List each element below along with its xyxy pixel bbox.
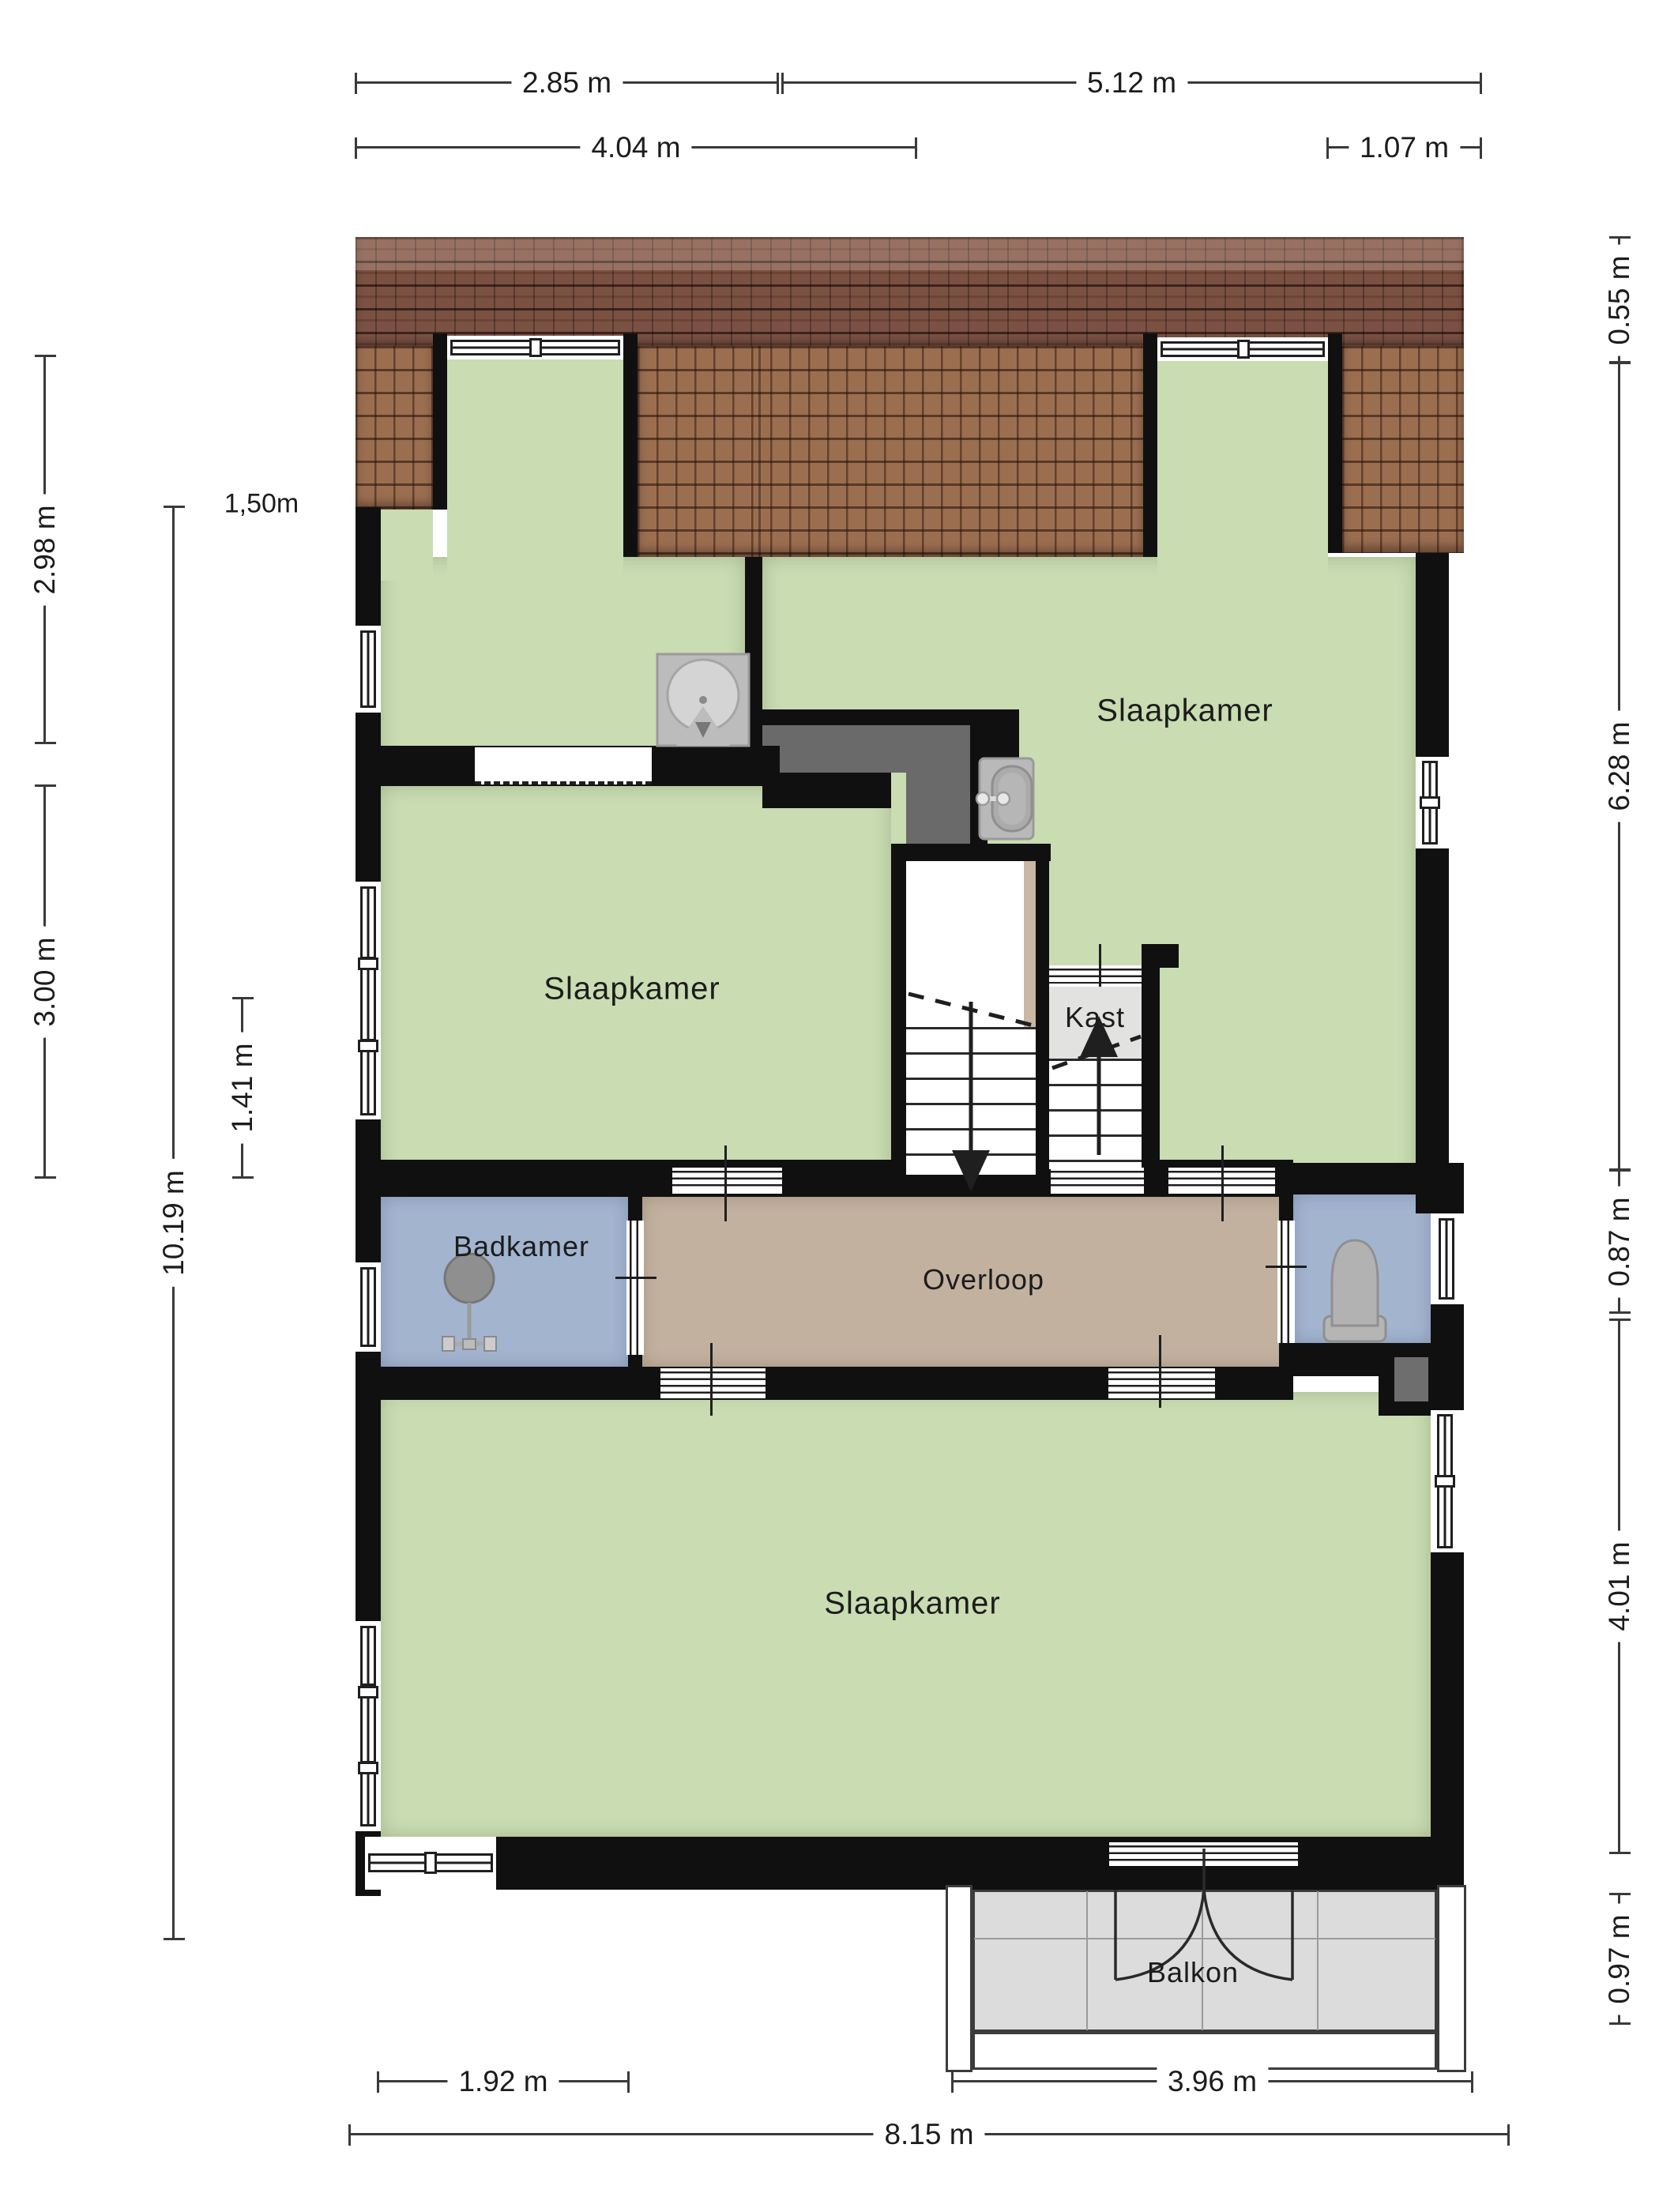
balcony-pillar-right [1437,1885,1466,2072]
stair-handrail [1024,861,1036,1029]
window-bottom [365,1837,496,1890]
dim-bottom-3: 8.15 m [349,2133,1509,2135]
opening-landing-stairs-up [1051,1168,1144,1194]
window-left-bedroommid [355,882,381,1119]
dim-right-5: 0.97 m [1618,1894,1620,2024]
door-tick [1266,1266,1307,1268]
headroom-annotation: 1,50m [224,489,299,520]
room-bedroom-right-dormer [1157,357,1328,586]
window-interior [475,747,652,784]
wall-wc-bottom [1279,1343,1464,1376]
balcony-pillar-left [946,1885,972,2072]
opening-landing-bedroommid [672,1168,782,1194]
wall-void-bottom [762,773,891,808]
window-left-bedroombottom [355,1621,381,1831]
opening-landing-bedroombottom-left [660,1368,766,1398]
balcony-grid [1086,1891,1088,2030]
wall-dormer2-right [1328,333,1342,553]
stairwell-landing [906,861,1036,1031]
room-label-closet: Kast [1065,1001,1125,1034]
door-closet [1049,965,1142,987]
wall-void-right [970,725,987,844]
stairs-up [1049,1059,1142,1169]
door-tick [615,1277,656,1279]
roof-right-section [1342,346,1464,553]
opening-tick [724,1145,727,1221]
dim-top-2: 5.12 m [782,81,1481,84]
wall-dormer1-left [433,333,447,510]
floor-plan: Slaapkamer Slaapkamer Slaapkamer Badkame… [0,0,1659,2212]
dim-top-1: 2.85 m [355,81,778,84]
window-dormer2 [1157,337,1328,361]
chimney-nook [1394,1357,1428,1401]
room-label-bedroom-right: Slaapkamer [1097,694,1273,729]
room-bedroom-top-dormer [447,355,623,585]
dim-bottom-2: 3.96 m [952,2080,1473,2082]
room-label-balcony: Balkon [1147,1956,1239,1989]
opening-landing-bedroombottom-right [1108,1368,1215,1398]
wall-stairs-left [891,844,906,1197]
wall-right-upper [1416,553,1449,1213]
stair-void-lower [906,773,970,844]
dim-right-3: 0.87 m [1618,1170,1620,1313]
room-bathroom [381,1197,628,1367]
dim-left-2: 3.00 m [43,785,46,1178]
dim-top-3: 4.04 m [355,146,916,149]
door-balcony-threshold [1109,1842,1298,1866]
wall-dormer2-left [1143,333,1157,557]
room-bedroom-top-strip [381,510,433,581]
stairs-down [906,1027,1036,1175]
wall-hall-top [355,1160,1293,1197]
wall-stairs-right [1036,844,1049,1197]
dim-left-1: 2.98 m [43,355,46,743]
opening-tick [1159,1335,1161,1408]
window-dormer1 [447,336,623,359]
room-label-landing: Overloop [923,1263,1044,1296]
door-bathroom [626,1221,644,1355]
room-label-bathroom: Badkamer [453,1230,589,1263]
balcony-grid [974,1938,1435,1939]
window-right-wc [1431,1213,1464,1304]
roof-left-section [355,346,433,510]
window-right-bedroomtop [1416,757,1449,848]
balcony-grid [1317,1891,1319,2030]
stair-void [762,725,970,773]
wall-right-lower [1431,1209,1464,1896]
wall-wc-top [1279,1163,1464,1194]
dim-right-2: 6.28 m [1618,363,1620,1170]
dim-right-1: 0.55 m [1618,237,1620,363]
wall-stairs-top [891,844,1051,861]
dim-left-4: 1.41 m [241,998,243,1178]
opening-tick [1221,1145,1224,1221]
roof-middle-section [638,346,1143,557]
window-right-bedroombottom [1431,1410,1464,1552]
wall-void-top [745,709,1019,725]
dim-right-4: 4.01 m [1618,1319,1620,1853]
dim-top-4: 1.07 m [1327,146,1481,149]
dim-bottom-1: 1.92 m [378,2080,629,2082]
door-wc [1277,1221,1295,1343]
wall-closet-jog [1142,944,1179,968]
wall-dormer1-right [623,333,638,557]
window-left-bathroom [355,1262,381,1352]
roof-cap-strip [355,237,1464,270]
room-label-bedroom-bottom: Slaapkamer [824,1586,1000,1622]
room-label-bedroom-middle: Slaapkamer [544,972,720,1007]
roof-seam [758,346,761,557]
room-wc [1293,1194,1431,1343]
opening-tick [710,1343,713,1416]
dim-left-3: 10.19 m [172,506,175,1939]
window-left-bedroomtop [355,626,381,713]
